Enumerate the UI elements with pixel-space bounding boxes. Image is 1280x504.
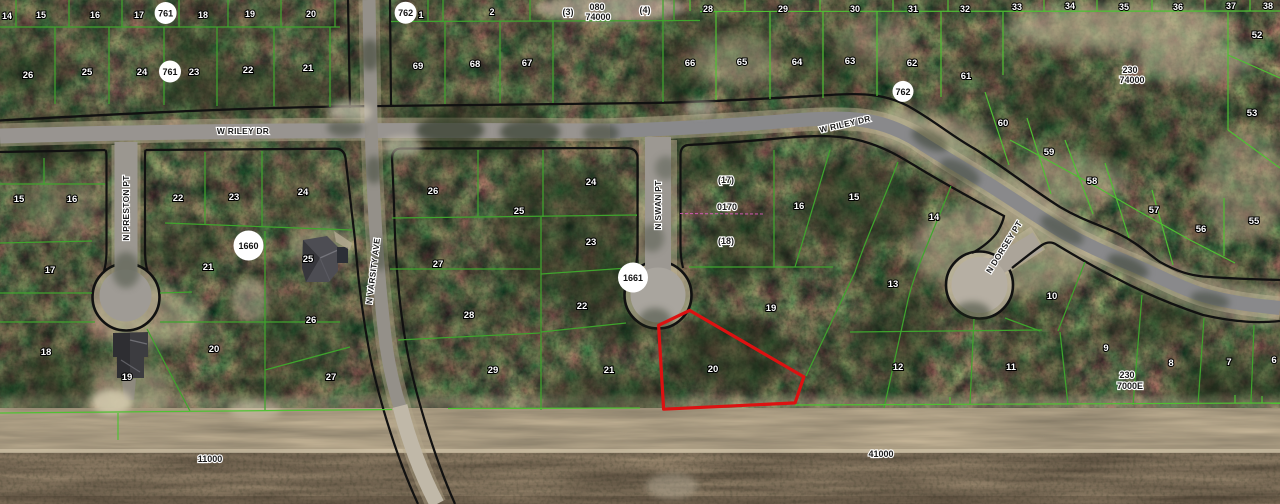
svg-text:(17): (17): [718, 175, 734, 185]
svg-text:27: 27: [326, 372, 337, 383]
svg-text:26: 26: [23, 70, 34, 81]
svg-text:64: 64: [792, 57, 803, 68]
svg-text:37: 37: [1226, 1, 1236, 11]
svg-text:16: 16: [794, 201, 805, 212]
svg-text:65: 65: [737, 57, 748, 68]
svg-text:11: 11: [1006, 362, 1017, 373]
svg-text:62: 62: [907, 58, 918, 69]
svg-text:21: 21: [604, 365, 615, 376]
svg-text:17: 17: [134, 10, 144, 20]
svg-text:W RILEY DR: W RILEY DR: [217, 126, 269, 136]
svg-text:17: 17: [45, 265, 56, 276]
svg-text:N PRESTON PT: N PRESTON PT: [121, 175, 131, 241]
svg-text:762: 762: [895, 87, 910, 97]
svg-text:21: 21: [303, 63, 314, 74]
svg-text:23: 23: [586, 237, 597, 248]
svg-text:12: 12: [893, 362, 904, 373]
svg-text:32: 32: [960, 4, 970, 14]
svg-text:22: 22: [577, 301, 588, 312]
svg-text:25: 25: [82, 67, 93, 78]
svg-text:1: 1: [418, 10, 423, 20]
svg-text:60: 60: [998, 118, 1009, 129]
svg-text:28: 28: [703, 4, 713, 14]
svg-text:18: 18: [41, 347, 52, 358]
svg-text:19: 19: [122, 372, 133, 383]
svg-text:762: 762: [398, 8, 413, 18]
svg-text:(4): (4): [640, 5, 651, 15]
svg-text:230: 230: [1119, 370, 1134, 380]
svg-text:(3): (3): [563, 7, 574, 17]
svg-text:761: 761: [162, 67, 177, 77]
svg-text:27: 27: [433, 259, 444, 270]
svg-text:24: 24: [586, 177, 597, 188]
svg-text:15: 15: [14, 194, 25, 205]
svg-text:26: 26: [428, 186, 439, 197]
svg-text:8: 8: [1168, 358, 1173, 369]
svg-text:22: 22: [243, 65, 254, 76]
svg-text:61: 61: [961, 71, 972, 82]
svg-text:20: 20: [708, 364, 719, 375]
svg-text:6: 6: [1271, 355, 1276, 366]
svg-text:7: 7: [1226, 357, 1231, 368]
svg-text:18: 18: [198, 10, 208, 20]
svg-text:1661: 1661: [623, 273, 643, 283]
svg-text:26: 26: [306, 315, 317, 326]
svg-text:36: 36: [1173, 2, 1183, 12]
svg-text:9: 9: [1103, 343, 1108, 354]
svg-text:14: 14: [2, 11, 12, 21]
svg-text:29: 29: [488, 365, 499, 376]
svg-text:68: 68: [470, 59, 481, 70]
svg-text:14: 14: [929, 212, 940, 223]
svg-text:52: 52: [1252, 30, 1263, 41]
svg-text:19: 19: [766, 303, 777, 314]
svg-text:23: 23: [189, 67, 200, 78]
svg-text:20: 20: [306, 9, 316, 19]
svg-text:19: 19: [245, 9, 255, 19]
svg-text:30: 30: [850, 4, 860, 14]
svg-text:63: 63: [845, 56, 856, 67]
svg-text:0170: 0170: [717, 202, 737, 212]
svg-text:58: 58: [1087, 176, 1098, 187]
svg-text:69: 69: [413, 61, 424, 72]
svg-text:29: 29: [778, 4, 788, 14]
svg-text:16: 16: [67, 194, 78, 205]
svg-text:13: 13: [888, 279, 899, 290]
svg-text:15: 15: [849, 192, 860, 203]
svg-text:34: 34: [1065, 1, 1075, 11]
svg-text:55: 55: [1249, 216, 1260, 227]
svg-text:7000E: 7000E: [1117, 381, 1143, 391]
svg-text:080: 080: [589, 2, 604, 12]
svg-text:56: 56: [1196, 224, 1207, 235]
svg-text:35: 35: [1119, 2, 1129, 12]
svg-text:31: 31: [908, 4, 918, 14]
svg-text:25: 25: [303, 254, 314, 265]
svg-text:16: 16: [90, 10, 100, 20]
svg-text:761: 761: [158, 8, 173, 18]
svg-text:11000: 11000: [198, 454, 223, 464]
svg-text:57: 57: [1149, 205, 1160, 216]
svg-text:21: 21: [203, 262, 214, 273]
svg-text:53: 53: [1247, 108, 1258, 119]
svg-text:15: 15: [36, 10, 46, 20]
svg-text:28: 28: [464, 310, 475, 321]
svg-text:230: 230: [1122, 65, 1137, 75]
svg-text:2: 2: [489, 7, 494, 17]
svg-text:41000: 41000: [868, 449, 893, 459]
svg-text:74000: 74000: [1119, 75, 1144, 85]
svg-text:10: 10: [1047, 291, 1058, 302]
svg-text:25: 25: [514, 206, 525, 217]
svg-text:N SWAN PT: N SWAN PT: [653, 180, 663, 230]
svg-text:23: 23: [229, 192, 240, 203]
svg-text:59: 59: [1044, 147, 1055, 158]
svg-text:24: 24: [137, 67, 148, 78]
svg-text:74000: 74000: [585, 12, 610, 22]
svg-text:1660: 1660: [238, 241, 258, 251]
svg-text:(18): (18): [718, 236, 734, 246]
svg-text:33: 33: [1012, 2, 1022, 12]
svg-text:20: 20: [209, 344, 220, 355]
svg-text:38: 38: [1263, 1, 1273, 11]
svg-text:24: 24: [298, 187, 309, 198]
svg-text:67: 67: [522, 58, 533, 69]
svg-text:66: 66: [685, 58, 696, 69]
svg-text:22: 22: [173, 193, 184, 204]
